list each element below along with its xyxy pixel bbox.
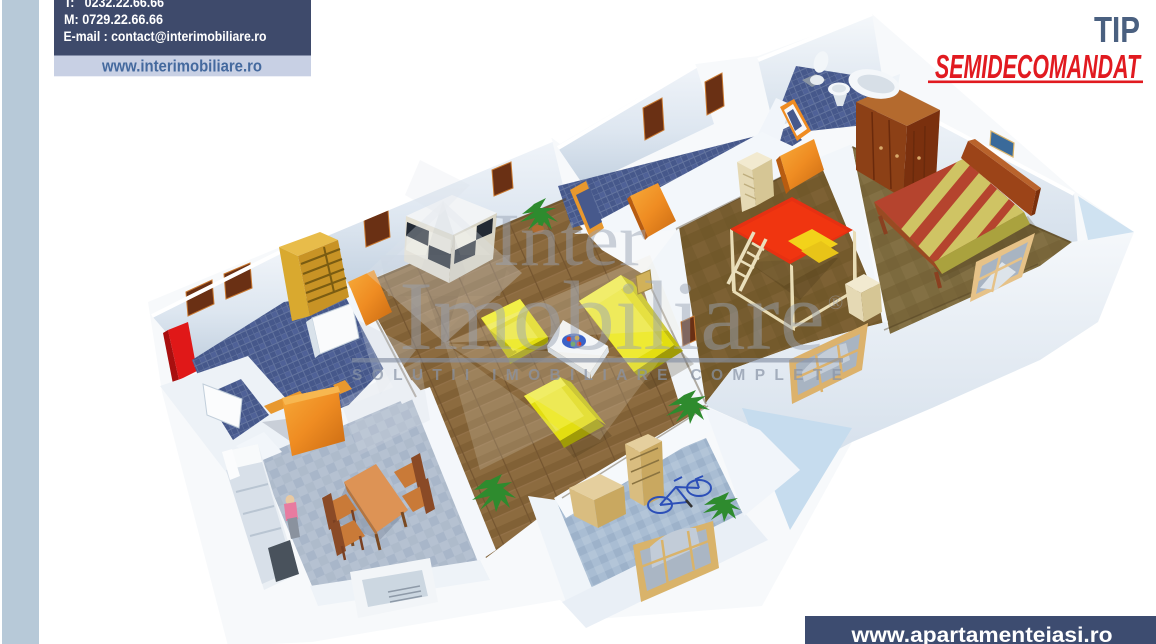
- svg-text:M: 0729.22.66.66: M: 0729.22.66.66: [64, 11, 163, 27]
- svg-text:www.apartamenteiasi.ro: www.apartamenteiasi.ro: [850, 624, 1112, 644]
- svg-text:®: ®: [828, 292, 843, 314]
- svg-text:TIP: TIP: [1094, 9, 1140, 50]
- svg-text:Imobiliare: Imobiliare: [399, 262, 825, 371]
- svg-text:T: 0232.22.66.66: T: 0232.22.66.66: [64, 0, 164, 10]
- svg-text:E-mail : contact@interimobilia: E-mail : contact@interimobiliare.ro: [64, 28, 267, 44]
- svg-text:www.interimobiliare.ro: www.interimobiliare.ro: [101, 57, 262, 76]
- svg-text:SEMIDECOMANDAT: SEMIDECOMANDAT: [935, 48, 1142, 85]
